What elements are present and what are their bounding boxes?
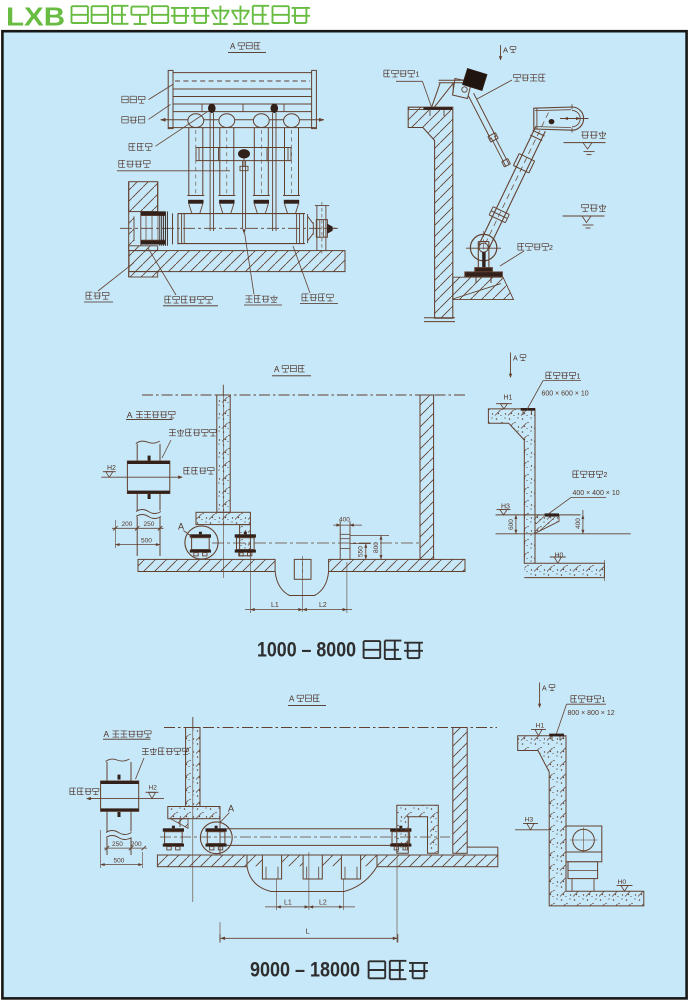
svg-text:600 × 600 × 10: 600 × 600 × 10	[542, 390, 589, 397]
svg-text:A: A	[542, 686, 547, 693]
svg-text:LXB: LXB	[6, 2, 65, 32]
svg-text:200: 200	[131, 841, 142, 848]
svg-text:600: 600	[508, 519, 515, 530]
svg-text:H0: H0	[618, 879, 627, 886]
svg-text:400 × 400 × 10: 400 × 400 × 10	[573, 490, 620, 497]
svg-text:L: L	[306, 927, 310, 936]
svg-text:H1: H1	[504, 394, 513, 401]
svg-text:A: A	[513, 356, 518, 363]
svg-text:H2: H2	[149, 785, 158, 792]
svg-text:A: A	[104, 729, 110, 739]
svg-text:2: 2	[549, 245, 553, 252]
svg-text:500: 500	[114, 857, 125, 864]
svg-text:550: 550	[358, 546, 365, 557]
svg-text:H3: H3	[525, 817, 534, 824]
svg-text:A: A	[228, 804, 234, 814]
svg-text:H1: H1	[536, 723, 545, 730]
svg-text:L1: L1	[271, 602, 279, 609]
svg-text:250: 250	[112, 841, 123, 848]
svg-text:800 × 800 × 12: 800 × 800 × 12	[568, 710, 615, 717]
svg-text:L2: L2	[319, 602, 327, 609]
svg-text:400: 400	[575, 518, 582, 529]
svg-text:A: A	[503, 46, 508, 55]
svg-text:250: 250	[144, 521, 155, 528]
svg-text:400: 400	[339, 517, 350, 524]
svg-text:H2: H2	[107, 465, 116, 472]
svg-text:500: 500	[141, 537, 152, 544]
svg-text:H0: H0	[555, 553, 564, 560]
svg-text:A: A	[127, 410, 133, 420]
svg-text:1000 – 8000: 1000 – 8000	[257, 639, 356, 662]
svg-text:1: 1	[602, 697, 606, 704]
svg-text:800: 800	[373, 542, 380, 553]
svg-text:2: 2	[604, 472, 608, 479]
svg-text:A: A	[230, 42, 236, 51]
svg-text:A: A	[178, 522, 184, 532]
svg-text:A: A	[289, 695, 295, 704]
svg-text:L2: L2	[319, 899, 327, 906]
svg-text:A: A	[274, 365, 280, 374]
svg-text:L1: L1	[284, 899, 292, 906]
svg-text:9000 – 18000: 9000 – 18000	[250, 959, 360, 982]
svg-text:1: 1	[577, 373, 581, 380]
svg-text:200: 200	[122, 521, 133, 528]
svg-text:1: 1	[416, 72, 420, 79]
